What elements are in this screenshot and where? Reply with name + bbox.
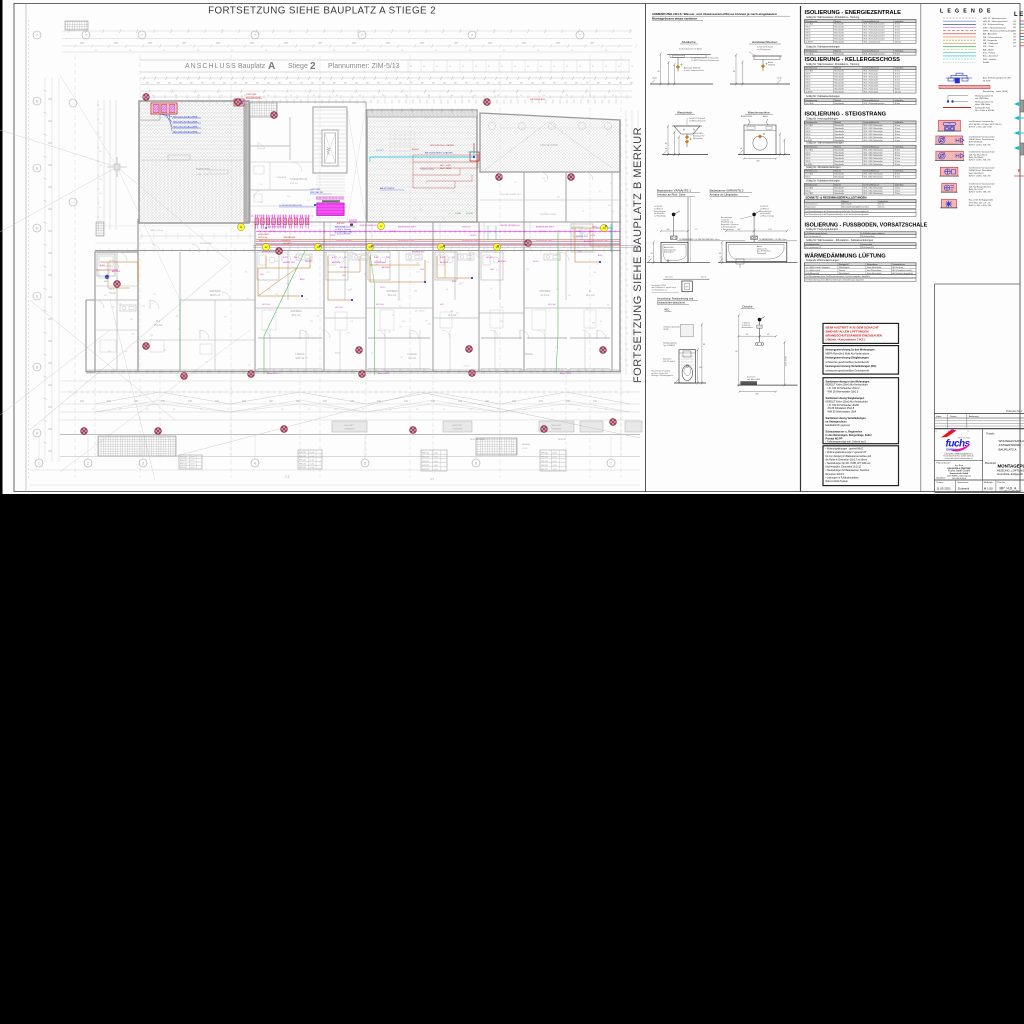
- svg-text:2.01: 2.01: [350, 321, 354, 323]
- svg-text:Mineralwolle: Mineralwolle: [834, 186, 843, 189]
- svg-text:HZG ANB.: HZG ANB.: [283, 242, 292, 245]
- svg-text:s. Detail LUFTUNG: s. Detail LUFTUNG: [335, 233, 351, 236]
- svg-text:375: 375: [108, 351, 111, 353]
- svg-text:25: 25: [359, 95, 361, 97]
- svg-text:20x2.5: 20x2.5: [533, 261, 538, 263]
- svg-text:Da. DN12: Da. DN12: [806, 71, 813, 73]
- svg-text:387: 387: [564, 83, 567, 85]
- svg-text:20x2.5: 20x2.5: [380, 287, 385, 289]
- svg-text:387: 387: [454, 83, 457, 85]
- svg-text:Bodenablauf: Bodenablauf: [664, 252, 674, 254]
- svg-text:7: 7: [141, 34, 143, 38]
- svg-text:85: 85: [733, 71, 735, 73]
- svg-text:e-mail: office@fuchs-haustechn: e-mail: office@fuchs-haustechnik.at: [945, 457, 973, 460]
- svg-text:B: B: [36, 431, 38, 435]
- svg-text:Dämmdicke/-art: Dämmdicke/-art: [892, 263, 905, 266]
- svg-text:• Wohnungsabsaumungen >genere: • Wohnungsabsaumungen >generell 24": [826, 451, 867, 454]
- svg-text:25: 25: [600, 321, 602, 323]
- svg-text:Regenwasser: Regenwasser: [806, 206, 817, 209]
- svg-text:40 mm: 40 mm: [895, 134, 901, 136]
- svg-text:Da. DN20: Da. DN20: [806, 187, 813, 189]
- svg-text:387: 387: [300, 83, 303, 85]
- svg-text:ISOL - KSU- Rohrschalen: ISOL - KSU- Rohrschalen: [863, 133, 882, 136]
- svg-text:ISOL - Rohrschale kaschiert: ISOL - Rohrschale kaschiert: [863, 32, 885, 35]
- svg-text:ISOL - KSU- Rohrschalen: ISOL - KSU- Rohrschalen: [863, 139, 882, 142]
- svg-text:25: 25: [119, 304, 121, 306]
- svg-text:SFB 132: SFB 132: [422, 457, 429, 459]
- svg-text:387: 387: [114, 41, 119, 45]
- svg-text:50: 50: [100, 137, 102, 139]
- svg-text:387: 387: [146, 83, 149, 85]
- svg-text:• Leitungen im Fußbodenaufbau,: • Leitungen im Fußbodenaufbau,: [826, 476, 860, 479]
- svg-text:294: 294: [48, 296, 53, 299]
- svg-text:375: 375: [323, 197, 326, 199]
- svg-text:KW/WW/ZIRK 26x3: KW/WW/ZIRK 26x3: [336, 240, 352, 242]
- svg-text:38.87 m2: 38.87 m2: [210, 294, 221, 297]
- svg-text:50: 50: [100, 207, 102, 209]
- svg-text:Typ: SIGMA 01: Typ: SIGMA 01: [663, 344, 675, 347]
- svg-text:14: 14: [459, 284, 461, 286]
- svg-text:294: 294: [48, 142, 53, 145]
- svg-text:GMBH: GMBH: [946, 448, 956, 452]
- svg-text:387: 387: [190, 83, 193, 85]
- svg-text:ALU kaschiert: ALU kaschiert: [892, 266, 903, 269]
- svg-text:MP_H,S_A_: MP_H,S_A_: [1000, 487, 1019, 491]
- svg-text:Brausebatterie: Brausebatterie: [742, 326, 753, 329]
- svg-text:387: 387: [399, 83, 402, 85]
- svg-text:50: 50: [627, 269, 629, 271]
- svg-text:WW22: WW22: [390, 231, 395, 233]
- svg-text:14: 14: [374, 342, 376, 344]
- svg-text:DN 20: DN 20: [806, 177, 811, 179]
- svg-text:HZG-VERT.: HZG-VERT.: [258, 234, 270, 236]
- svg-text:Mineralwolle: Mineralwolle: [834, 78, 843, 81]
- svg-text:294: 294: [48, 318, 53, 321]
- svg-text:13 mm: 13 mm: [895, 190, 901, 192]
- svg-text:490: 490: [539, 400, 544, 403]
- svg-text:SFB 132: SFB 132: [541, 469, 548, 471]
- svg-text:Küchenspülen, Dimension 16.2x1: Küchenspülen, Dimension 16.2x12: [826, 467, 862, 469]
- svg-text:+0.00: +0.00: [552, 457, 557, 459]
- svg-text:50: 50: [100, 123, 102, 125]
- svg-text:387: 387: [432, 83, 435, 85]
- svg-text:AB DN50: AB DN50: [584, 240, 592, 243]
- svg-text:50: 50: [100, 179, 102, 181]
- svg-text:Waschmaschine:: Waschmaschine:: [748, 111, 771, 115]
- svg-text:160: 160: [338, 202, 341, 204]
- svg-text:RW - Schmutzwasser: RW - Schmutzwasser: [983, 36, 1003, 39]
- svg-text:50: 50: [100, 165, 102, 167]
- svg-text:ISOL - KSU- Rohrschalen: ISOL - KSU- Rohrschalen: [863, 173, 882, 176]
- svg-text:294: 294: [48, 120, 53, 123]
- svg-text:Mineralwolle: Mineralwolle: [834, 127, 843, 130]
- svg-text:14: 14: [245, 271, 247, 273]
- svg-text:LUFTUNG DACH: LUFTUNG DACH: [530, 98, 545, 101]
- svg-text:Isolierdicke: Isolierdicke: [895, 49, 904, 52]
- svg-text:AB DN50: AB DN50: [382, 266, 390, 269]
- svg-text:+0.00: +0.00: [309, 460, 314, 462]
- svg-text:294: 294: [48, 340, 53, 343]
- svg-text:A: A: [268, 61, 275, 72]
- svg-text:ab DN 80: ab DN 80: [806, 91, 813, 93]
- svg-text:HZG: HZG: [440, 304, 444, 306]
- svg-text:25: 25: [198, 95, 200, 97]
- svg-text:F700-SE DOWN: F700-SE DOWN: [540, 214, 557, 216]
- svg-text:WC-H90: WC-H90: [305, 261, 312, 263]
- svg-text:Mineralwolle: Mineralwolle: [834, 70, 843, 73]
- svg-text:Mineralwolle: Mineralwolle: [834, 87, 843, 90]
- svg-text:Gültig für: Kaltwasserleitunge: Gültig für: Kaltwasserleitungen: [806, 180, 841, 183]
- svg-text:490: 490: [134, 400, 139, 403]
- svg-text:12: 12: [264, 245, 268, 249]
- svg-text:387: 387: [420, 41, 425, 45]
- svg-text:in Fußboden gegen beheizt: in Fußboden gegen beheizt: [806, 232, 828, 235]
- svg-text:+0.00: +0.00: [433, 457, 438, 459]
- svg-text:375: 375: [346, 333, 349, 335]
- svg-text:AUSSTATT.: AUSSTATT.: [345, 424, 355, 427]
- svg-text:Datum: Datum: [950, 415, 957, 418]
- svg-text:ZUL - Zuluft: ZUL - Zuluft: [983, 45, 994, 48]
- svg-text:98: 98: [703, 344, 705, 346]
- svg-text:30 mm: 30 mm: [895, 74, 901, 76]
- svg-text:DN 40: DN 40: [806, 36, 811, 38]
- svg-text:Mineralwolle: Mineralwolle: [834, 37, 843, 40]
- svg-text:ISOL - Rohrschalen: ISOL - Rohrschalen: [863, 84, 878, 87]
- svg-text:Mineralwolle: Mineralwolle: [834, 160, 843, 163]
- svg-text:GANG: GANG: [258, 214, 264, 217]
- svg-text:2.01: 2.01: [555, 347, 559, 349]
- svg-text:387: 387: [586, 83, 589, 85]
- svg-text:AB50: AB50: [598, 254, 602, 257]
- svg-text:120: 120: [526, 269, 529, 271]
- svg-text:Mineralwolle: Mineralwolle: [834, 124, 843, 127]
- svg-text:375: 375: [131, 334, 134, 336]
- svg-text:387: 387: [245, 83, 248, 85]
- svg-text:Mineralwolle: Mineralwolle: [834, 157, 843, 160]
- svg-text:40 mm: 40 mm: [895, 158, 901, 160]
- svg-text:90: 90: [260, 184, 262, 186]
- svg-text:490: 490: [112, 307, 115, 309]
- svg-text:HZG 16x2: HZG 16x2: [548, 304, 556, 306]
- svg-text:ANSPEISUNG: ANSPEISUNG: [262, 251, 275, 254]
- svg-text:375: 375: [255, 220, 258, 222]
- svg-text:SFB 132: SFB 132: [180, 467, 187, 469]
- svg-text:ISOL - Rohrschale kaschiert: ISOL - Rohrschale kaschiert: [863, 26, 885, 29]
- svg-text:±0,00: ±0,00: [652, 78, 656, 80]
- svg-text:Mineralwolle: Mineralwolle: [834, 148, 843, 151]
- svg-text:WWV - Warmwasserleitung Steige: WWV - Warmwasserleitung Steiger: [983, 29, 1015, 32]
- svg-text:PE-Schaum 9/13: PE-Schaum 9/13: [861, 247, 874, 249]
- svg-text:490: 490: [566, 400, 571, 403]
- svg-text:Dämmstoffdicke/-art: Dämmstoffdicke/-art: [863, 170, 879, 173]
- svg-text:50 mm: 50 mm: [895, 137, 901, 139]
- svg-text:59: 59: [651, 253, 653, 255]
- svg-text:387: 387: [498, 83, 501, 85]
- svg-text:1: 1: [38, 462, 40, 466]
- svg-text:7: 7: [579, 34, 581, 38]
- svg-text:VL/RL: VL/RL: [270, 231, 275, 233]
- svg-text:DN 20: DN 20: [806, 27, 811, 29]
- svg-text:294: 294: [48, 98, 53, 101]
- svg-text:7.5: 7.5: [695, 229, 698, 231]
- svg-text:ZI. 1: ZI. 1: [110, 288, 115, 291]
- svg-text:• Wohnungsleitungen - generell: • Wohnungsleitungen - generell Wd.1: [826, 448, 865, 451]
- svg-text:DN 25: DN 25: [806, 190, 811, 192]
- svg-text:13 mm: 13 mm: [895, 193, 901, 195]
- svg-text:2.4: 2.4: [442, 218, 445, 220]
- svg-text:WOHNEN: WOHNEN: [387, 290, 398, 293]
- svg-text:DN 40: DN 40: [806, 161, 811, 163]
- svg-text:Da. DN12: Da. DN12: [806, 125, 813, 127]
- svg-text:Planverfasser:: Planverfasser:: [937, 461, 951, 464]
- svg-text:11.05.2021: 11.05.2021: [937, 486, 952, 490]
- svg-text:100 mm: 100 mm: [895, 41, 902, 43]
- svg-text:TERRASSE: TERRASSE: [344, 428, 355, 431]
- svg-text:-2.20: -2.20: [522, 448, 528, 450]
- svg-text:Handwaschbecken:: Handwaschbecken:: [752, 40, 778, 44]
- svg-text:14: 14: [247, 298, 249, 300]
- svg-text:B: B: [36, 294, 38, 298]
- svg-text:25: 25: [543, 95, 545, 97]
- svg-text:375: 375: [542, 178, 545, 180]
- svg-text:2.4: 2.4: [260, 202, 263, 204]
- svg-text:Folgende Wärmedämmungen:: Folgende Wärmedämmungen:: [806, 259, 840, 262]
- svg-text:Schmutzwasser: Schmutzwasser: [806, 203, 818, 206]
- svg-text:30 mm: 30 mm: [879, 207, 885, 209]
- svg-text:11: 11: [239, 225, 242, 229]
- svg-text:schwarzes geschweißtes Gewinde: schwarzes geschweißtes Gewinderohr: [826, 360, 870, 364]
- svg-text:Stiege: Stiege: [288, 63, 308, 70]
- svg-text:25: 25: [544, 212, 546, 214]
- svg-text:14: 14: [400, 327, 402, 329]
- svg-text:Dusche: Dusche: [742, 305, 753, 309]
- svg-text:AB DN50: AB DN50: [332, 261, 340, 264]
- svg-text:Rohrdimension: Rohrdimension: [806, 121, 818, 124]
- svg-text:490: 490: [512, 400, 517, 403]
- svg-text:ANSPEISUNG: ANSPEISUNG: [412, 251, 425, 254]
- svg-text:L E G E N D E: L E G E N D E: [940, 8, 992, 14]
- svg-text:ISOL - Drahtnetzmatte: ISOL - Drahtnetzmatte: [863, 40, 880, 43]
- svg-text:ISOL - KSU- Rohrschalen: ISOL - KSU- Rohrschalen: [863, 192, 882, 195]
- svg-text:• Steinleitungen für Badewanne: • Steinleitungen für Badewannen, Duschen…: [826, 469, 871, 472]
- svg-text:SFB 132: SFB 132: [299, 467, 306, 469]
- svg-text:Mineralwolle: Mineralwolle: [834, 32, 843, 35]
- svg-text:ISOL - KSU- Rohrschalen: ISOL - KSU- Rohrschalen: [863, 148, 882, 151]
- svg-text:Isolierdicke: Isolierdicke: [895, 121, 904, 124]
- svg-text:Maßstab:: Maßstab:: [984, 481, 994, 484]
- svg-text:120: 120: [496, 269, 499, 271]
- svg-text:SFB 132: SFB 132: [180, 464, 187, 466]
- svg-text:30.2 m2: 30.2 m2: [292, 314, 301, 317]
- svg-text:Ablauf DN70: Ablauf DN70: [267, 372, 279, 375]
- svg-text:Mineralwolle: Mineralwolle: [834, 136, 843, 139]
- svg-text:387: 387: [509, 83, 512, 85]
- svg-text:387: 387: [256, 83, 259, 85]
- svg-text:14: 14: [392, 315, 394, 317]
- svg-text:BxH xT = 940 x 240 x 940: BxH xT = 940 x 240 x 940: [969, 126, 993, 128]
- svg-text:RR - Regenrohr: RR - Regenrohr: [983, 40, 997, 42]
- svg-text:50: 50: [100, 193, 102, 195]
- svg-text:Zu- u. Abluft verteilt: Zu- u. Abluft verteilt: [806, 269, 821, 272]
- svg-text:ALU (Dampfdicht verklebt): ALU (Dampfdicht verklebt): [892, 269, 912, 272]
- svg-text:375: 375: [275, 294, 278, 296]
- svg-text:FORTSETZUNG SIEHE BAUPLATZ A: FORTSETZUNG SIEHE BAUPLATZ A STIEGE 2: [208, 6, 436, 17]
- svg-text:AUSSTATT.: AUSSTATT.: [453, 424, 463, 427]
- svg-text:387: 387: [630, 83, 633, 85]
- svg-text:50 mm: 50 mm: [895, 82, 901, 84]
- svg-text:ANSPEISUNG: ANSPEISUNG: [741, 115, 753, 118]
- svg-text:DN 65: DN 65: [806, 88, 811, 90]
- svg-text:ABL - Abluft: ABL - Abluft: [983, 48, 994, 51]
- svg-text:100 mm: 100 mm: [895, 91, 902, 93]
- svg-text:294: 294: [48, 428, 53, 431]
- svg-text:16x2: 16x2: [420, 269, 424, 271]
- svg-text:Isolierdicke: Isolierdicke: [895, 170, 904, 173]
- svg-text:WC-H90: WC-H90: [486, 257, 493, 259]
- svg-text:DN 25: DN 25: [806, 77, 811, 79]
- svg-text:294: 294: [48, 406, 53, 409]
- svg-text:Montage u. Befestigungsmat.: Montage u. Befestigungsmat.: [651, 374, 673, 377]
- svg-text:F700-SE DOWN 150: F700-SE DOWN 150: [500, 194, 521, 196]
- svg-text:ISOL - KSU- Rohrschalen: ISOL - KSU- Rohrschalen: [863, 157, 882, 160]
- svg-text:B: B: [36, 365, 38, 369]
- svg-text:BS-K90: BS-K90: [412, 149, 419, 151]
- svg-text:25: 25: [587, 308, 589, 310]
- svg-text:490: 490: [431, 400, 436, 403]
- svg-text:387: 387: [476, 83, 479, 85]
- svg-text:25: 25: [515, 182, 517, 184]
- svg-text:160: 160: [345, 207, 348, 209]
- svg-text:6: 6: [475, 462, 477, 466]
- svg-text:DN 50: DN 50: [806, 85, 811, 87]
- svg-text:375: 375: [500, 307, 503, 309]
- svg-text:DN 20: DN 20: [806, 152, 811, 154]
- svg-text:387: 387: [590, 41, 595, 45]
- svg-text:Haustechnik GmbH: Haustechnik GmbH: [950, 472, 969, 475]
- svg-text:50 mm: 50 mm: [895, 36, 901, 38]
- svg-text:+0.00: +0.00: [552, 465, 557, 467]
- svg-text:2.01: 2.01: [316, 316, 320, 318]
- svg-text:387: 387: [575, 83, 578, 85]
- svg-text:Datum:: Datum:: [937, 481, 944, 484]
- svg-text:Isolierdicke: Isolierdicke: [895, 20, 904, 23]
- svg-text:25: 25: [382, 95, 384, 97]
- svg-text:25: 25: [607, 304, 609, 306]
- svg-text:ISOL - KSU- Rohrschalen: ISOL - KSU- Rohrschalen: [863, 151, 882, 154]
- svg-text:Flexrohr: Flexrohr: [839, 269, 846, 272]
- svg-text:ZENTRAL 160: ZENTRAL 160: [310, 191, 324, 194]
- svg-text:SFB 132: SFB 132: [541, 461, 548, 463]
- svg-text:ISOL - Rohrschalen: ISOL - Rohrschalen: [863, 90, 878, 93]
- svg-text:Wohnungsstation mit: Wohnungsstation mit: [975, 95, 994, 98]
- svg-text:Sanitärzelle Stahl: Sanitärzelle Stahl: [975, 106, 991, 109]
- svg-text:Gültig für: Kaltwasserleitunge: Gültig für: Kaltwasserleitungen: [806, 46, 841, 49]
- svg-text:WOHNEN: WOHNEN: [210, 290, 221, 293]
- svg-text:Mineralwolle: Mineralwolle: [834, 29, 843, 32]
- svg-text:1x WW 1/2 Eckventil: 1x WW 1/2 Eckventil: [689, 119, 706, 122]
- svg-text:ISOL - KSU- Rohrschalen: ISOL - KSU- Rohrschalen: [863, 189, 882, 192]
- svg-text:25: 25: [244, 95, 246, 97]
- svg-text:in Fußboden/-Bau: in Fußboden/-Bau: [806, 244, 820, 246]
- svg-text:40 mm: 40 mm: [895, 30, 901, 32]
- svg-text:387: 387: [454, 41, 459, 45]
- svg-text:auf Brausestange: auf Brausestange: [760, 215, 774, 218]
- svg-text:50: 50: [627, 205, 629, 207]
- svg-text:387: 387: [443, 83, 446, 85]
- svg-text:VORRAUM: VORRAUM: [276, 176, 287, 179]
- svg-text:387: 387: [344, 83, 347, 85]
- svg-text:Vorsatzschale: Vorsatzschale: [861, 243, 872, 246]
- svg-text:DN 25: DN 25: [806, 155, 811, 157]
- svg-text:+0.00: +0.00: [433, 465, 438, 467]
- svg-text:14: 14: [595, 264, 597, 266]
- svg-text:387: 387: [352, 41, 357, 45]
- svg-text:unt. Verbindosen o.ä.: unt. Verbindosen o.ä.: [651, 288, 667, 291]
- svg-text:Mineralwolle: Mineralwolle: [834, 23, 843, 26]
- svg-text:BxHxT = 940 x 464 x 120: BxHxT = 940 x 464 x 120: [969, 205, 992, 207]
- svg-text:ohne Wärmedämm.: ohne Wärmedämm.: [867, 269, 882, 272]
- svg-text:25: 25: [405, 95, 407, 97]
- svg-text:1x WW 1/2 Eckventil Geräteans: 1x WW 1/2 Eckventil Geräteanschl.: [691, 59, 720, 62]
- svg-text:ab DN 65: ab DN 65: [806, 41, 813, 43]
- svg-text:7: 7: [36, 34, 38, 38]
- svg-text:375: 375: [178, 310, 181, 312]
- svg-text:30 mm: 30 mm: [895, 177, 901, 179]
- svg-text:GIS, Typ Waschtisch: GIS, Typ Waschtisch: [969, 153, 987, 156]
- svg-text:±0: ±0: [720, 256, 722, 258]
- svg-text:387: 387: [278, 83, 281, 85]
- svg-text:387: 387: [201, 83, 204, 85]
- svg-text:25: 25: [497, 95, 499, 97]
- svg-text:+0.00: +0.00: [433, 469, 438, 471]
- svg-text:490: 490: [286, 283, 289, 285]
- svg-text:367: 367: [738, 229, 741, 231]
- svg-text:Isolierdicke: Isolierdicke: [895, 183, 904, 186]
- svg-text:387: 387: [267, 83, 270, 85]
- svg-text:WC:: WC:: [664, 308, 670, 312]
- svg-text:VERT.: VERT.: [592, 227, 598, 229]
- svg-text:Material: Material: [834, 121, 841, 124]
- svg-text:AW - Ablaufrohr: AW - Ablaufrohr: [983, 33, 997, 36]
- svg-text:375: 375: [449, 213, 452, 215]
- svg-text:Dämmstoffdicke/-art: Dämmstoffdicke/-art: [863, 183, 879, 186]
- svg-text:40 mm: 40 mm: [895, 131, 901, 133]
- svg-text:Heizungsverrohrung Steigleitun: Heizungsverrohrung Steigleitungen: [826, 356, 870, 360]
- svg-text:B-WT: B-WT: [374, 257, 380, 259]
- svg-text:Planinhalt:: Planinhalt:: [985, 462, 996, 465]
- svg-text:Mineralwolle: Mineralwolle: [834, 35, 843, 38]
- svg-text:2x 1/2: 2x 1/2: [701, 277, 706, 279]
- svg-text:Mineralwolle: Mineralwolle: [834, 102, 843, 105]
- svg-text:90: 90: [657, 71, 659, 73]
- svg-text:Rohrtype/-Ø: Rohrtype/-Ø: [839, 263, 849, 266]
- svg-text:2: 2: [310, 61, 316, 72]
- svg-text:Polierplan Nr. 1: Polierplan Nr. 1: [1006, 410, 1023, 413]
- svg-text:294: 294: [48, 230, 53, 233]
- svg-text:schwarzes geschweißtes Gewinde: schwarzes geschweißtes Gewinderohr: [826, 368, 870, 372]
- svg-text:50: 50: [627, 333, 629, 335]
- svg-text:50: 50: [627, 253, 629, 255]
- svg-text:2.01: 2.01: [416, 272, 420, 274]
- svg-text:25: 25: [389, 331, 391, 333]
- svg-text:375: 375: [150, 335, 153, 337]
- svg-text:25: 25: [582, 211, 584, 213]
- svg-text:Da. Durchmesser 13: Da. Durchmesser 13: [806, 246, 822, 249]
- svg-text:SFB 132: SFB 132: [422, 452, 429, 454]
- svg-text:LOGGIA: LOGGIA: [407, 353, 417, 356]
- svg-text:AB DN50: AB DN50: [440, 261, 448, 264]
- svg-text:TERRASSE: TERRASSE: [551, 428, 562, 431]
